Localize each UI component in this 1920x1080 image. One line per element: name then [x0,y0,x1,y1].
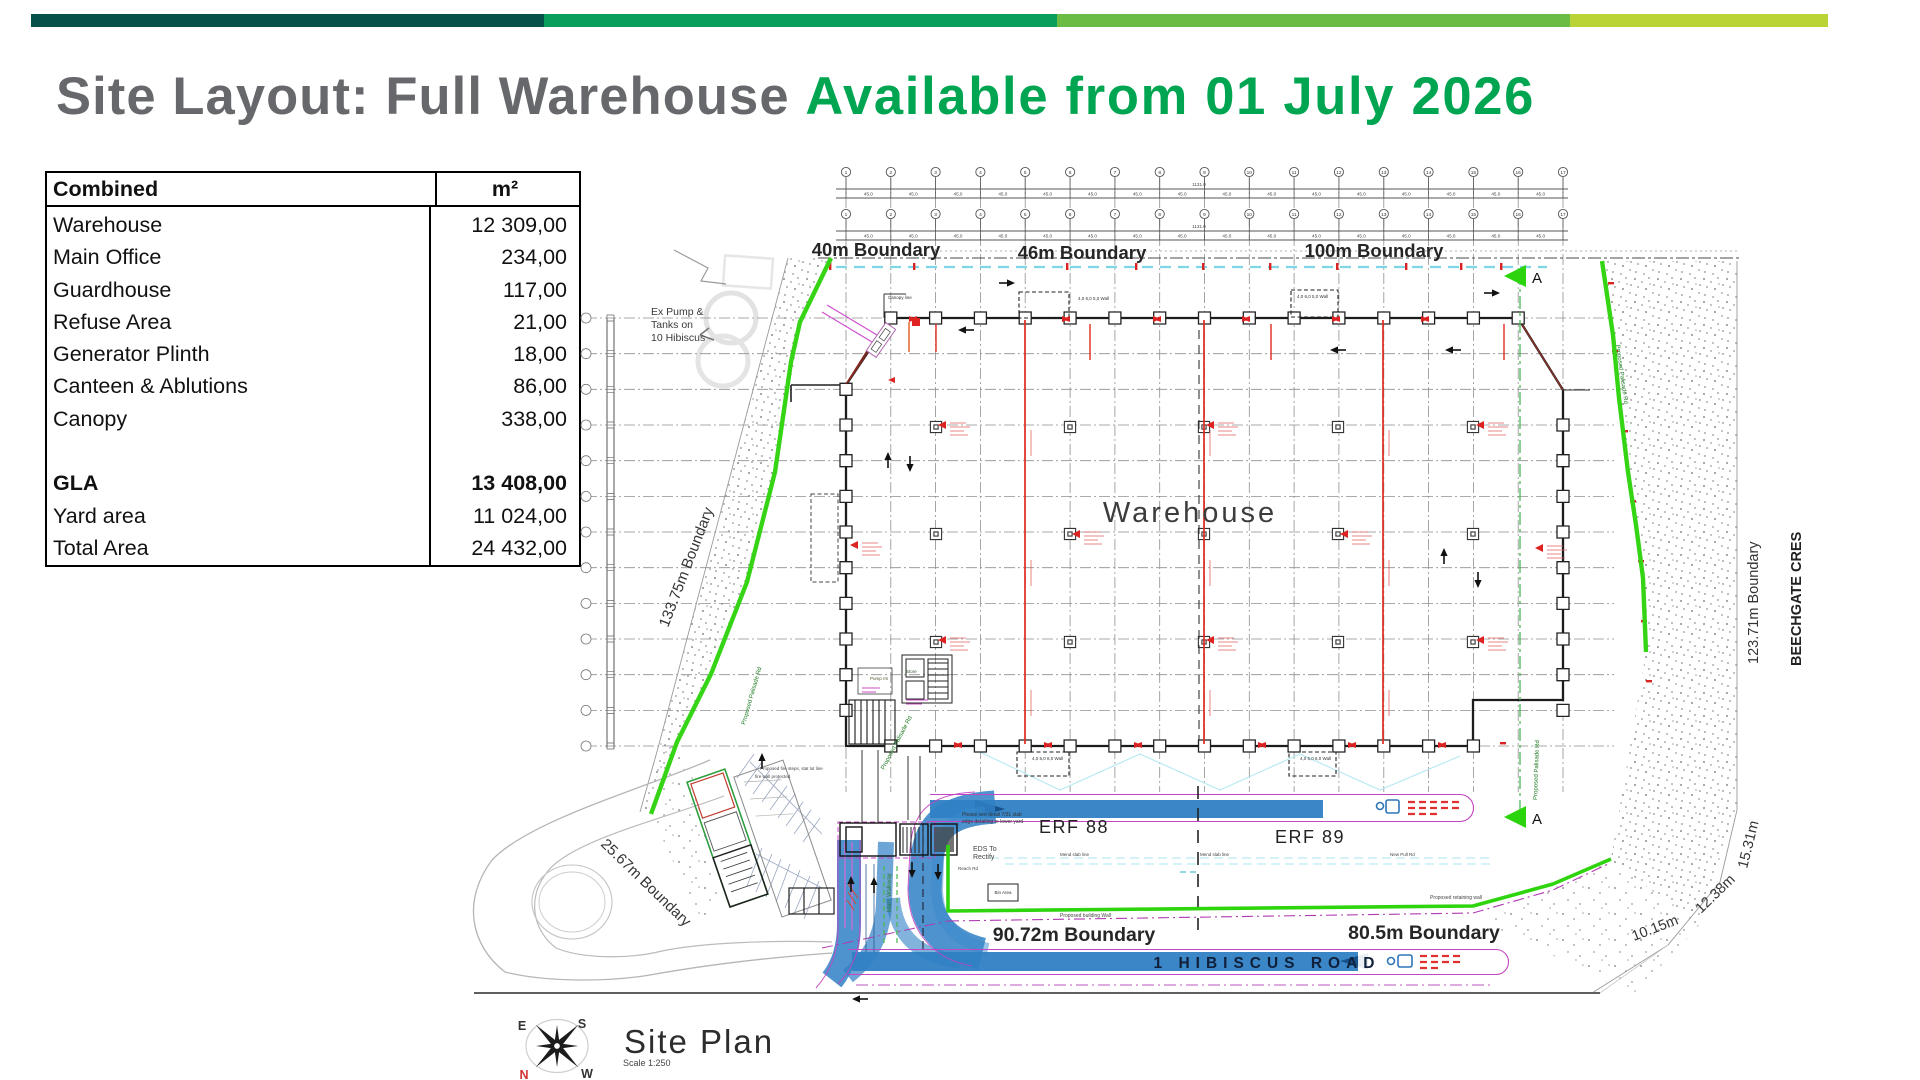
svg-text:1131.0: 1131.0 [1192,224,1206,229]
svg-text:10: 10 [1247,212,1253,218]
svg-text:Store: Store [906,669,917,674]
svg-text:3: 3 [934,212,937,218]
svg-text:123.71m Boundary: 123.71m Boundary [1746,541,1762,664]
svg-text:4: 4 [979,212,982,218]
svg-text:17: 17 [1560,212,1566,218]
svg-text:EDS To: EDS To [973,846,997,853]
svg-text:100m Boundary: 100m Boundary [1305,240,1445,261]
svg-text:17: 17 [1560,170,1566,176]
svg-text:Mend slab line: Mend slab line [1060,852,1090,857]
svg-text:fire wall protected: fire wall protected [755,774,791,779]
svg-text:2: 2 [889,212,892,218]
svg-text:45.0: 45.0 [1447,234,1456,239]
svg-text:ERF 89: ERF 89 [1275,827,1345,847]
svg-text:45.0: 45.0 [1312,234,1321,239]
svg-text:1: 1 [845,212,848,218]
svg-text:Scale 1:250: Scale 1:250 [623,1058,671,1068]
svg-text:S: S [578,1017,586,1031]
svg-text:15: 15 [1471,212,1477,218]
svg-text:8: 8 [1158,170,1161,176]
svg-text:5: 5 [1024,170,1027,176]
svg-text:4: 4 [979,170,982,176]
svg-text:45.0: 45.0 [1043,234,1052,239]
svg-text:Proposed fire steps, stat lot: Proposed fire steps, stat lot line [760,766,823,771]
svg-text:7: 7 [1114,170,1117,176]
svg-text:45.0: 45.0 [1357,192,1366,197]
svg-text:3: 3 [934,170,937,176]
svg-text:8: 8 [1158,212,1161,218]
svg-text:Proposed Palisade Rd: Proposed Palisade Rd [1533,740,1541,800]
svg-text:13: 13 [1381,212,1387,218]
svg-text:Warehouse: Warehouse [1103,497,1277,529]
svg-text:1: 1 [845,170,848,176]
svg-text:4,0 6,0 5,0 Wall: 4,0 6,0 5,0 Wall [1078,296,1109,301]
svg-text:45.0: 45.0 [1043,192,1052,197]
svg-text:45.0: 45.0 [1536,234,1545,239]
svg-text:45.0: 45.0 [998,234,1007,239]
svg-text:ERF 88: ERF 88 [1039,817,1109,837]
svg-text:Reach Rd: Reach Rd [958,866,979,871]
svg-text:N: N [519,1068,528,1080]
svg-text:45.0: 45.0 [1267,192,1276,197]
svg-text:Tanks on: Tanks on [651,319,693,331]
svg-text:13: 13 [1381,170,1387,176]
svg-text:45.0: 45.0 [1447,192,1456,197]
svg-text:15: 15 [1471,170,1477,176]
svg-text:46m Boundary: 46m Boundary [1018,242,1147,263]
svg-text:12: 12 [1336,212,1342,218]
svg-text:6: 6 [1069,170,1072,176]
svg-text:45.0: 45.0 [954,192,963,197]
svg-text:11: 11 [1292,212,1297,218]
svg-text:45.0: 45.0 [909,192,918,197]
svg-text:BEECHGATE CRES: BEECHGATE CRES [1789,531,1805,666]
svg-text:Proposed building Wall: Proposed building Wall [1060,913,1111,919]
svg-text:14: 14 [1426,170,1432,176]
svg-text:45.0: 45.0 [1402,234,1411,239]
svg-text:Please see detail 7/31 slab: Please see detail 7/31 slab [962,812,1022,818]
svg-text:90.72m Boundary: 90.72m Boundary [993,924,1156,946]
svg-text:45.0: 45.0 [1536,192,1545,197]
svg-text:45.0: 45.0 [1267,234,1276,239]
svg-text:6: 6 [1069,212,1072,218]
svg-text:4,0 5,0 6,0 Wall: 4,0 5,0 6,0 Wall [1032,756,1063,761]
svg-text:Proposed Palisade Rd: Proposed Palisade Rd [741,666,763,725]
svg-text:45.0: 45.0 [1133,192,1142,197]
svg-text:16: 16 [1516,212,1522,218]
svg-text:Proposed retaining wall: Proposed retaining wall [1430,895,1482,901]
svg-text:2: 2 [889,170,892,176]
svg-text:12: 12 [1336,170,1342,176]
svg-text:45.0: 45.0 [1491,234,1500,239]
svg-text:45.0: 45.0 [1312,192,1321,197]
svg-text:New Pull Rd: New Pull Rd [1390,852,1415,857]
svg-text:4,0 6,0 5,0 Wall: 4,0 6,0 5,0 Wall [1297,294,1328,299]
svg-text:A: A [1532,811,1542,828]
svg-text:edge detailing to lower yard: edge detailing to lower yard [962,819,1023,825]
svg-text:45.0: 45.0 [864,192,873,197]
svg-text:1131.0: 1131.0 [1192,182,1206,187]
svg-text:45.0: 45.0 [1222,192,1231,197]
svg-text:45.0: 45.0 [1088,234,1097,239]
svg-text:5: 5 [1024,212,1027,218]
svg-text:Ex Pump &: Ex Pump & [651,306,704,318]
svg-text:14: 14 [1426,212,1432,218]
svg-text:A: A [1532,270,1542,287]
svg-text:Marc Walkway: Marc Walkway [887,873,893,912]
svg-text:9: 9 [1203,212,1206,218]
svg-text:Canopy line: Canopy line [888,295,912,300]
svg-text:45.0: 45.0 [1088,192,1097,197]
svg-text:45.0: 45.0 [1178,234,1187,239]
svg-text:16: 16 [1516,170,1522,176]
svg-text:45.0: 45.0 [1491,192,1500,197]
svg-text:9: 9 [1203,170,1206,176]
svg-text:E: E [518,1019,526,1033]
svg-text:10: 10 [1247,170,1253,176]
svg-text:Site Plan: Site Plan [624,1023,774,1060]
svg-text:15.31m: 15.31m [1735,819,1762,870]
svg-text:10 Hibiscus: 10 Hibiscus [651,332,705,344]
svg-text:45.0: 45.0 [1402,192,1411,197]
svg-text:40m Boundary: 40m Boundary [812,239,941,260]
svg-text:7: 7 [1114,212,1117,218]
svg-text:45.0: 45.0 [864,234,873,239]
svg-text:45.0: 45.0 [1133,234,1142,239]
svg-text:45.0: 45.0 [998,192,1007,197]
svg-text:Pump rm: Pump rm [870,676,889,681]
svg-text:45.0: 45.0 [1357,234,1366,239]
svg-text:1 HIBISCUS ROAD: 1 HIBISCUS ROAD [1154,955,1381,972]
svg-text:4,0 5,0 6,0 Wall: 4,0 5,0 6,0 Wall [1300,756,1331,761]
svg-text:11: 11 [1292,170,1297,176]
svg-text:45.0: 45.0 [1222,234,1231,239]
svg-text:Bin Area: Bin Area [994,890,1012,895]
svg-text:45.0: 45.0 [954,234,963,239]
svg-text:W: W [581,1067,593,1080]
svg-text:80.5m Boundary: 80.5m Boundary [1348,922,1500,944]
svg-text:45.0: 45.0 [909,234,918,239]
svg-text:45.0: 45.0 [1178,192,1187,197]
svg-text:Rectify: Rectify [973,854,995,861]
svg-text:Mend slab line: Mend slab line [1200,852,1230,857]
